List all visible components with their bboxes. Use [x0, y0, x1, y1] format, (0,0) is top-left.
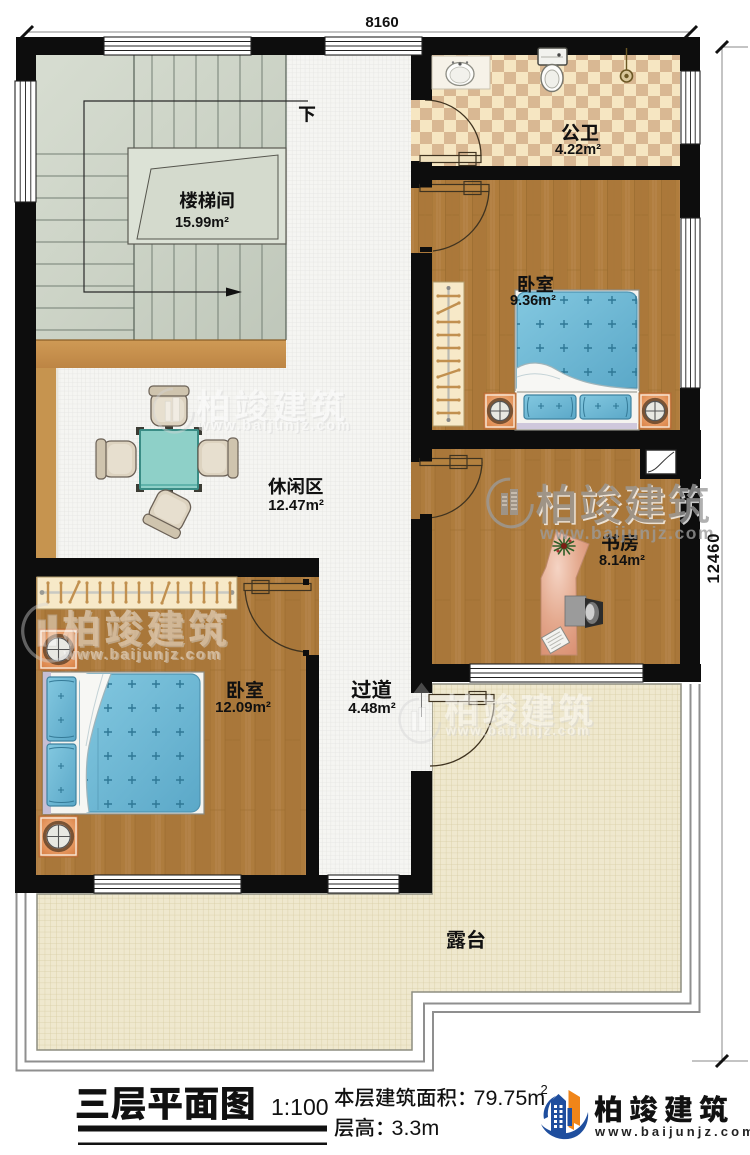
- svg-text:www.baijunjz.com: www.baijunjz.com: [63, 646, 222, 663]
- svg-text:www.baijunjz.com: www.baijunjz.com: [539, 523, 715, 543]
- svg-text:4.48m²: 4.48m²: [348, 700, 396, 717]
- svg-text:3.3m: 3.3m: [392, 1116, 440, 1140]
- svg-text:2: 2: [541, 1082, 548, 1097]
- svg-text:9.36m²: 9.36m²: [510, 293, 556, 309]
- svg-text:12.47m²: 12.47m²: [268, 497, 324, 514]
- svg-text:79.75m: 79.75m: [474, 1086, 546, 1110]
- svg-text:12460: 12460: [705, 533, 723, 584]
- svg-text:1:100: 1:100: [271, 1094, 329, 1120]
- svg-text:www.baijunjz.com: www.baijunjz.com: [197, 418, 352, 434]
- svg-text:www.baijunjz.com: www.baijunjz.com: [594, 1124, 750, 1139]
- svg-text:www.baijunjz.com: www.baijunjz.com: [445, 723, 591, 738]
- svg-text:4.22m²: 4.22m²: [555, 142, 601, 158]
- svg-text:15.99m²: 15.99m²: [175, 215, 229, 231]
- svg-text:12.09m²: 12.09m²: [215, 699, 271, 716]
- svg-text:8160: 8160: [365, 14, 398, 31]
- svg-text:8.14m²: 8.14m²: [599, 553, 645, 569]
